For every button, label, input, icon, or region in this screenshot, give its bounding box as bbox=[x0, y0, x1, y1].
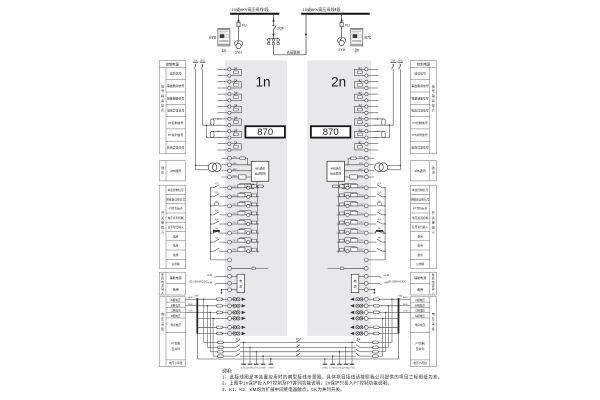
svg-text:零序电压: 零序电压 bbox=[170, 323, 181, 327]
svg-text:出: 出 bbox=[161, 98, 164, 103]
svg-text:TWJ: TWJ bbox=[359, 222, 363, 224]
svg-text:信: 信 bbox=[432, 84, 435, 89]
svg-text:4QF: 4QF bbox=[377, 219, 382, 221]
svg-text:A相电压: A相电压 bbox=[171, 298, 181, 302]
svg-text:电压小母线: 电压小母线 bbox=[413, 361, 427, 365]
svg-text:(1YMc): (1YMc) bbox=[253, 367, 259, 369]
svg-text:PT并列信号: PT并列信号 bbox=[168, 132, 183, 137]
svg-text:PT控制信号: PT控制信号 bbox=[168, 120, 183, 125]
svg-text:PT并列允许: PT并列允许 bbox=[169, 207, 183, 211]
svg-text:备用: 备用 bbox=[173, 253, 179, 257]
svg-text:B相电压: B相电压 bbox=[415, 303, 425, 307]
svg-text:号: 号 bbox=[432, 88, 435, 93]
svg-text:备用: 备用 bbox=[173, 244, 179, 248]
svg-text:采: 采 bbox=[161, 321, 164, 326]
svg-text:2YM: 2YM bbox=[398, 296, 403, 298]
svg-text:3QF: 3QF bbox=[377, 210, 382, 212]
svg-text:(2YMb): (2YMb) bbox=[343, 367, 350, 369]
svg-text:装置异常信号: 装置异常信号 bbox=[411, 145, 428, 150]
svg-text:去母联柜: 去母联柜 bbox=[287, 49, 301, 54]
svg-text:压: 压 bbox=[432, 317, 435, 321]
svg-text:源: 源 bbox=[161, 284, 164, 288]
svg-text:备用: 备用 bbox=[417, 287, 423, 292]
svg-text:FU: FU bbox=[345, 23, 350, 27]
svg-text:远动模块: 远动模块 bbox=[330, 172, 341, 176]
svg-text:公用端: 公用端 bbox=[416, 262, 424, 266]
svg-text:PT控制: PT控制 bbox=[416, 342, 425, 346]
svg-text:电: 电 bbox=[161, 311, 164, 316]
svg-text:SA: SA bbox=[215, 236, 218, 239]
svg-text:备用: 备用 bbox=[417, 234, 423, 238]
svg-text:4QF: 4QF bbox=[215, 219, 220, 221]
svg-text:电: 电 bbox=[239, 278, 242, 283]
svg-text:电压异常信号: 电压异常信号 bbox=[167, 108, 184, 113]
svg-text:TWJ: TWJ bbox=[232, 186, 236, 188]
svg-text:TWJ: TWJ bbox=[232, 204, 236, 206]
svg-text:量: 量 bbox=[432, 220, 435, 225]
svg-text:B相电压: B相电压 bbox=[171, 303, 181, 307]
svg-text:B630: B630 bbox=[188, 304, 192, 306]
svg-text:机: 机 bbox=[432, 276, 435, 280]
svg-text:讯: 讯 bbox=[161, 170, 164, 175]
svg-text:PT并列允许: PT并列允许 bbox=[413, 207, 427, 211]
svg-text:1QF: 1QF bbox=[377, 183, 382, 185]
svg-text:870: 870 bbox=[364, 35, 372, 40]
svg-text:(2YMa): (2YMa) bbox=[349, 367, 356, 369]
svg-text:PT控制: PT控制 bbox=[171, 342, 180, 346]
svg-text:85-265VAC/DC: 85-265VAC/DC bbox=[388, 280, 406, 284]
svg-text:1DK: 1DK bbox=[193, 60, 198, 62]
svg-text:KM: KM bbox=[296, 337, 301, 341]
svg-text:电压异常信号: 电压异常信号 bbox=[411, 108, 428, 113]
svg-text:辅助电源: 辅助电源 bbox=[170, 275, 182, 280]
svg-text:备用: 备用 bbox=[417, 244, 423, 248]
svg-text:压: 压 bbox=[161, 317, 164, 321]
svg-text:C630: C630 bbox=[403, 310, 408, 312]
svg-text:遥信信号: 遥信信号 bbox=[414, 71, 426, 76]
svg-text:开: 开 bbox=[432, 211, 435, 215]
svg-text:1n: 1n bbox=[255, 75, 270, 90]
svg-text:TWJ: TWJ bbox=[359, 186, 363, 188]
svg-text:TWJ: TWJ bbox=[232, 213, 236, 215]
svg-text:A相电压: A相电压 bbox=[415, 298, 425, 302]
svg-text:2n: 2n bbox=[354, 48, 359, 53]
svg-text:及并列: 及并列 bbox=[416, 347, 425, 351]
svg-text:1YM: 1YM bbox=[194, 296, 199, 298]
svg-text:+KM: +KM bbox=[384, 274, 389, 277]
svg-text:信号复归输入: 信号复归输入 bbox=[412, 225, 428, 229]
svg-text:电压小母线: 电压小母线 bbox=[169, 361, 183, 365]
svg-text:输: 输 bbox=[161, 93, 164, 98]
svg-text:(1YMn): (1YMn) bbox=[260, 367, 267, 369]
svg-text:FU: FU bbox=[242, 23, 247, 27]
svg-text:关: 关 bbox=[432, 215, 435, 220]
svg-text:通: 通 bbox=[161, 165, 164, 170]
svg-text:接: 接 bbox=[432, 102, 435, 107]
svg-text:本盘控制信号: 本盘控制信号 bbox=[412, 188, 428, 192]
svg-text:2QF: 2QF bbox=[215, 192, 220, 194]
svg-text:信号复归输入: 信号复归输入 bbox=[168, 225, 184, 229]
svg-text:FA: FA bbox=[378, 227, 381, 230]
svg-text:10或6KV高压母线Ⅱ段: 10或6KV高压母线Ⅱ段 bbox=[303, 6, 341, 12]
svg-text:弹簧储能信号: 弹簧储能信号 bbox=[411, 95, 428, 100]
svg-text:TWJ: TWJ bbox=[232, 231, 236, 233]
svg-text:2n: 2n bbox=[331, 75, 346, 90]
svg-text:公用端: 公用端 bbox=[172, 262, 180, 266]
svg-text:电: 电 bbox=[353, 278, 356, 283]
svg-text:输: 输 bbox=[432, 287, 435, 291]
svg-text:及并列: 及并列 bbox=[171, 347, 180, 351]
svg-text:控制电源: 控制电源 bbox=[166, 62, 180, 67]
svg-text:输: 输 bbox=[161, 287, 164, 291]
svg-text:信: 信 bbox=[161, 84, 164, 89]
svg-text:1DK: 1DK bbox=[398, 60, 403, 62]
svg-text:85-265VAC/DC: 85-265VAC/DC bbox=[189, 280, 207, 284]
svg-text:SA: SA bbox=[378, 236, 381, 239]
svg-text:电压并列控制: 电压并列控制 bbox=[168, 216, 184, 220]
svg-text:870: 870 bbox=[257, 127, 273, 138]
svg-text:PT控制信号: PT控制信号 bbox=[412, 120, 427, 125]
svg-text:C相电压: C相电压 bbox=[415, 309, 425, 313]
svg-text:(2YMn): (2YMn) bbox=[330, 367, 337, 369]
svg-text:2DK: 2DK bbox=[391, 60, 396, 62]
svg-text:输: 输 bbox=[432, 224, 435, 229]
svg-text:采: 采 bbox=[432, 321, 435, 326]
svg-text:2、上图中1n保护投入PT控制及PT并列功能说明，2n保护只: 2、上图中1n保护投入PT控制及PT并列功能说明，2n保护只投入PT控制功能说明… bbox=[222, 380, 392, 387]
svg-text:事故跳闸信号: 事故跳闸信号 bbox=[411, 83, 428, 88]
svg-text:PT并列信号: PT并列信号 bbox=[412, 132, 427, 137]
svg-text:集: 集 bbox=[161, 326, 164, 331]
svg-text:10或6KV高压母线Ⅰ段: 10或6KV高压母线Ⅰ段 bbox=[232, 6, 269, 12]
svg-text:(2YMc): (2YMc) bbox=[336, 367, 342, 369]
svg-text:TWJ: TWJ bbox=[359, 204, 363, 206]
svg-text:3、K1、K2、KM均为扩展中间继电器触点，CK为并列开关。: 3、K1、K2、KM均为扩展中间继电器触点，CK为并列开关。 bbox=[222, 386, 345, 393]
svg-text:点: 点 bbox=[161, 107, 164, 112]
svg-text:输: 输 bbox=[161, 224, 164, 229]
svg-text:号: 号 bbox=[161, 88, 164, 93]
svg-text:TWJ: TWJ bbox=[359, 249, 363, 251]
svg-text:N相电压: N相电压 bbox=[171, 314, 181, 318]
svg-text:485通讯: 485通讯 bbox=[255, 167, 265, 171]
svg-text:TWJ: TWJ bbox=[232, 249, 236, 251]
svg-text:2DK: 2DK bbox=[200, 60, 205, 62]
svg-text:-KM: -KM bbox=[208, 281, 212, 284]
svg-text:入: 入 bbox=[161, 291, 164, 295]
svg-text:TWJ: TWJ bbox=[359, 231, 363, 233]
svg-text:A630: A630 bbox=[188, 296, 192, 299]
svg-text:2QF: 2QF bbox=[377, 192, 382, 194]
svg-text:整: 整 bbox=[432, 273, 435, 277]
svg-text:A630: A630 bbox=[403, 296, 407, 299]
svg-text:电: 电 bbox=[432, 311, 435, 316]
svg-text:485通讯: 485通讯 bbox=[414, 168, 425, 173]
svg-text:(YMN): (YMN) bbox=[322, 367, 328, 369]
svg-text:870: 870 bbox=[323, 127, 339, 138]
svg-text:TWJ: TWJ bbox=[359, 213, 363, 215]
svg-text:开: 开 bbox=[161, 211, 164, 215]
svg-text:TWJ: TWJ bbox=[232, 240, 236, 242]
svg-text:2YH: 2YH bbox=[338, 48, 345, 52]
svg-text:K1: K1 bbox=[236, 337, 240, 341]
svg-text:量: 量 bbox=[161, 220, 164, 225]
svg-text:N相电压: N相电压 bbox=[415, 314, 425, 318]
svg-text:输: 输 bbox=[432, 93, 435, 98]
svg-text:电: 电 bbox=[432, 280, 435, 284]
svg-text:关: 关 bbox=[161, 215, 164, 220]
svg-text:远动模块: 远动模块 bbox=[254, 172, 265, 176]
svg-text:+KM: +KM bbox=[207, 274, 212, 277]
svg-text:(YMN): (YMN) bbox=[268, 367, 274, 369]
svg-text:备用: 备用 bbox=[173, 287, 179, 292]
svg-text:辅助电源: 辅助电源 bbox=[414, 275, 426, 280]
svg-text:装置异常信号: 装置异常信号 bbox=[167, 145, 184, 150]
svg-text:点: 点 bbox=[432, 107, 435, 112]
svg-text:本盘控制信号: 本盘控制信号 bbox=[168, 188, 184, 192]
svg-text:电: 电 bbox=[161, 280, 164, 284]
svg-text:3QF: 3QF bbox=[215, 210, 220, 212]
svg-text:源: 源 bbox=[239, 284, 242, 289]
svg-text:备用: 备用 bbox=[417, 253, 423, 257]
svg-text:FA: FA bbox=[215, 227, 218, 230]
svg-text:接: 接 bbox=[161, 102, 164, 107]
svg-text:弹簧储能信号: 弹簧储能信号 bbox=[167, 95, 184, 100]
svg-text:B630: B630 bbox=[403, 304, 407, 306]
svg-text:讯: 讯 bbox=[432, 170, 435, 175]
svg-text:入: 入 bbox=[432, 230, 435, 234]
svg-text:备用: 备用 bbox=[173, 234, 179, 238]
svg-text:TWJ: TWJ bbox=[359, 195, 363, 197]
svg-text:K2: K2 bbox=[357, 337, 361, 341]
svg-text:闭锁备自投信号: 闭锁备自投信号 bbox=[411, 197, 430, 201]
svg-text:C630: C630 bbox=[188, 310, 193, 312]
svg-text:源: 源 bbox=[353, 284, 356, 289]
svg-text:闭锁备自投信号: 闭锁备自投信号 bbox=[166, 197, 185, 201]
svg-text:TWJ: TWJ bbox=[232, 222, 236, 224]
svg-text:TWJ: TWJ bbox=[232, 195, 236, 197]
svg-text:1QF: 1QF bbox=[215, 183, 220, 185]
svg-text:870: 870 bbox=[209, 35, 217, 40]
svg-text:1YH: 1YH bbox=[235, 51, 242, 55]
svg-text:TWJ: TWJ bbox=[359, 240, 363, 242]
svg-text:入: 入 bbox=[161, 230, 164, 234]
svg-text:事故跳闸信号: 事故跳闸信号 bbox=[167, 83, 184, 88]
svg-text:485通讯: 485通讯 bbox=[331, 167, 341, 171]
svg-text:入: 入 bbox=[432, 291, 435, 295]
svg-text:源: 源 bbox=[432, 284, 435, 288]
svg-text:C相电压: C相电压 bbox=[171, 309, 181, 313]
svg-text:电压并列控制: 电压并列控制 bbox=[412, 216, 428, 220]
svg-text:说明:: 说明: bbox=[222, 367, 232, 374]
svg-text:集: 集 bbox=[432, 326, 435, 331]
svg-text:1n: 1n bbox=[222, 48, 227, 53]
svg-text:遥信信号: 遥信信号 bbox=[170, 71, 182, 76]
svg-text:机: 机 bbox=[161, 276, 164, 280]
svg-text:通: 通 bbox=[432, 165, 435, 170]
svg-text:485通讯: 485通讯 bbox=[170, 168, 181, 173]
svg-text:出: 出 bbox=[432, 98, 435, 103]
svg-text:3QF: 3QF bbox=[277, 26, 285, 30]
svg-text:整: 整 bbox=[161, 273, 164, 277]
svg-text:控制电源: 控制电源 bbox=[417, 62, 431, 67]
svg-text:1、此接线图是本装置应用时的典型接线示意图，具体项目接线请按: 1、此接线图是本装置应用时的典型接线示意图，具体项目接线请按照我公司提供的项目工… bbox=[222, 373, 443, 380]
svg-text:零序电压: 零序电压 bbox=[415, 323, 426, 327]
